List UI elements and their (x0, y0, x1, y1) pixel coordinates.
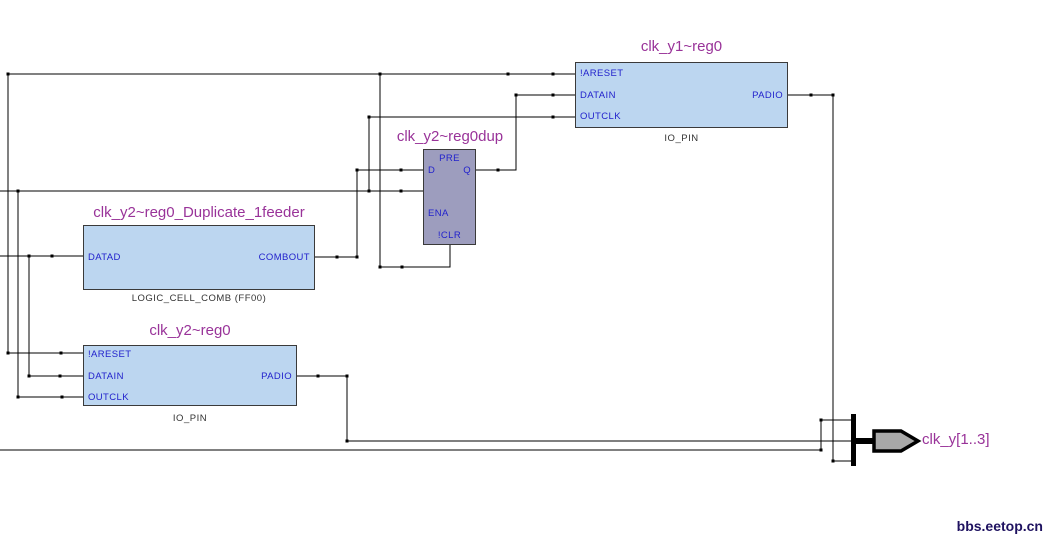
bus-joiner-bar[interactable] (851, 414, 875, 466)
block-type-feeder: LOGIC_CELL_COMB (FF00) (83, 293, 315, 304)
port-pre-dff: PRE (424, 154, 475, 164)
port-outclk-top-block: OUTCLK (580, 112, 621, 122)
watermark-text: bbs.eetop.cn (957, 518, 1043, 534)
port-datain-top-block: DATAIN (580, 91, 616, 101)
block-clk-y2-reg0dup[interactable]: PRE D Q ENA !CLR (423, 149, 476, 245)
block-feeder[interactable]: DATAD COMBOUT (83, 225, 315, 290)
block-clk-y1-reg0[interactable]: !ARESET DATAIN OUTCLK PADIO (575, 62, 788, 128)
port-q-dff: Q (463, 166, 471, 176)
net-padio-bottom[interactable] (297, 376, 853, 441)
block-title-clk-y1-reg0: clk_y1~reg0 (575, 38, 788, 55)
block-title-feeder: clk_y2~reg0_Duplicate_1feeder (83, 204, 315, 221)
output-pin-label: clk_y[1..3] (922, 431, 990, 449)
block-title-clk-y2-reg0: clk_y2~reg0 (83, 322, 297, 339)
port-ena-dff: ENA (428, 209, 449, 219)
port-padio-bottom-block: PADIO (261, 372, 292, 382)
block-title-clk-y2-reg0dup: clk_y2~reg0dup (380, 128, 520, 145)
block-type-clk-y1-reg0: IO_PIN (575, 133, 788, 144)
block-clk-y2-reg0[interactable]: !ARESET DATAIN OUTCLK PADIO (83, 345, 297, 406)
port-areset-top-block: !ARESET (580, 69, 623, 79)
output-pin-symbol[interactable] (874, 431, 918, 451)
net-padio-top[interactable] (788, 95, 853, 461)
port-outclk-bottom-block: OUTCLK (88, 393, 129, 403)
net-data[interactable] (0, 256, 83, 376)
port-combout-feeder: COMBOUT (259, 253, 310, 263)
port-areset-bottom-block: !ARESET (88, 350, 131, 360)
port-datain-bottom-block: DATAIN (88, 372, 124, 382)
schematic-canvas: clk_y1~reg0 !ARESET DATAIN OUTCLK PADIO … (0, 0, 1047, 546)
port-clr-dff: !CLR (424, 231, 475, 241)
port-padio-top-block: PADIO (752, 91, 783, 101)
port-d-dff: D (428, 166, 435, 176)
block-type-clk-y2-reg0: IO_PIN (83, 413, 297, 424)
net-bus-bit3[interactable] (0, 420, 853, 450)
port-datad-feeder: DATAD (88, 253, 121, 263)
